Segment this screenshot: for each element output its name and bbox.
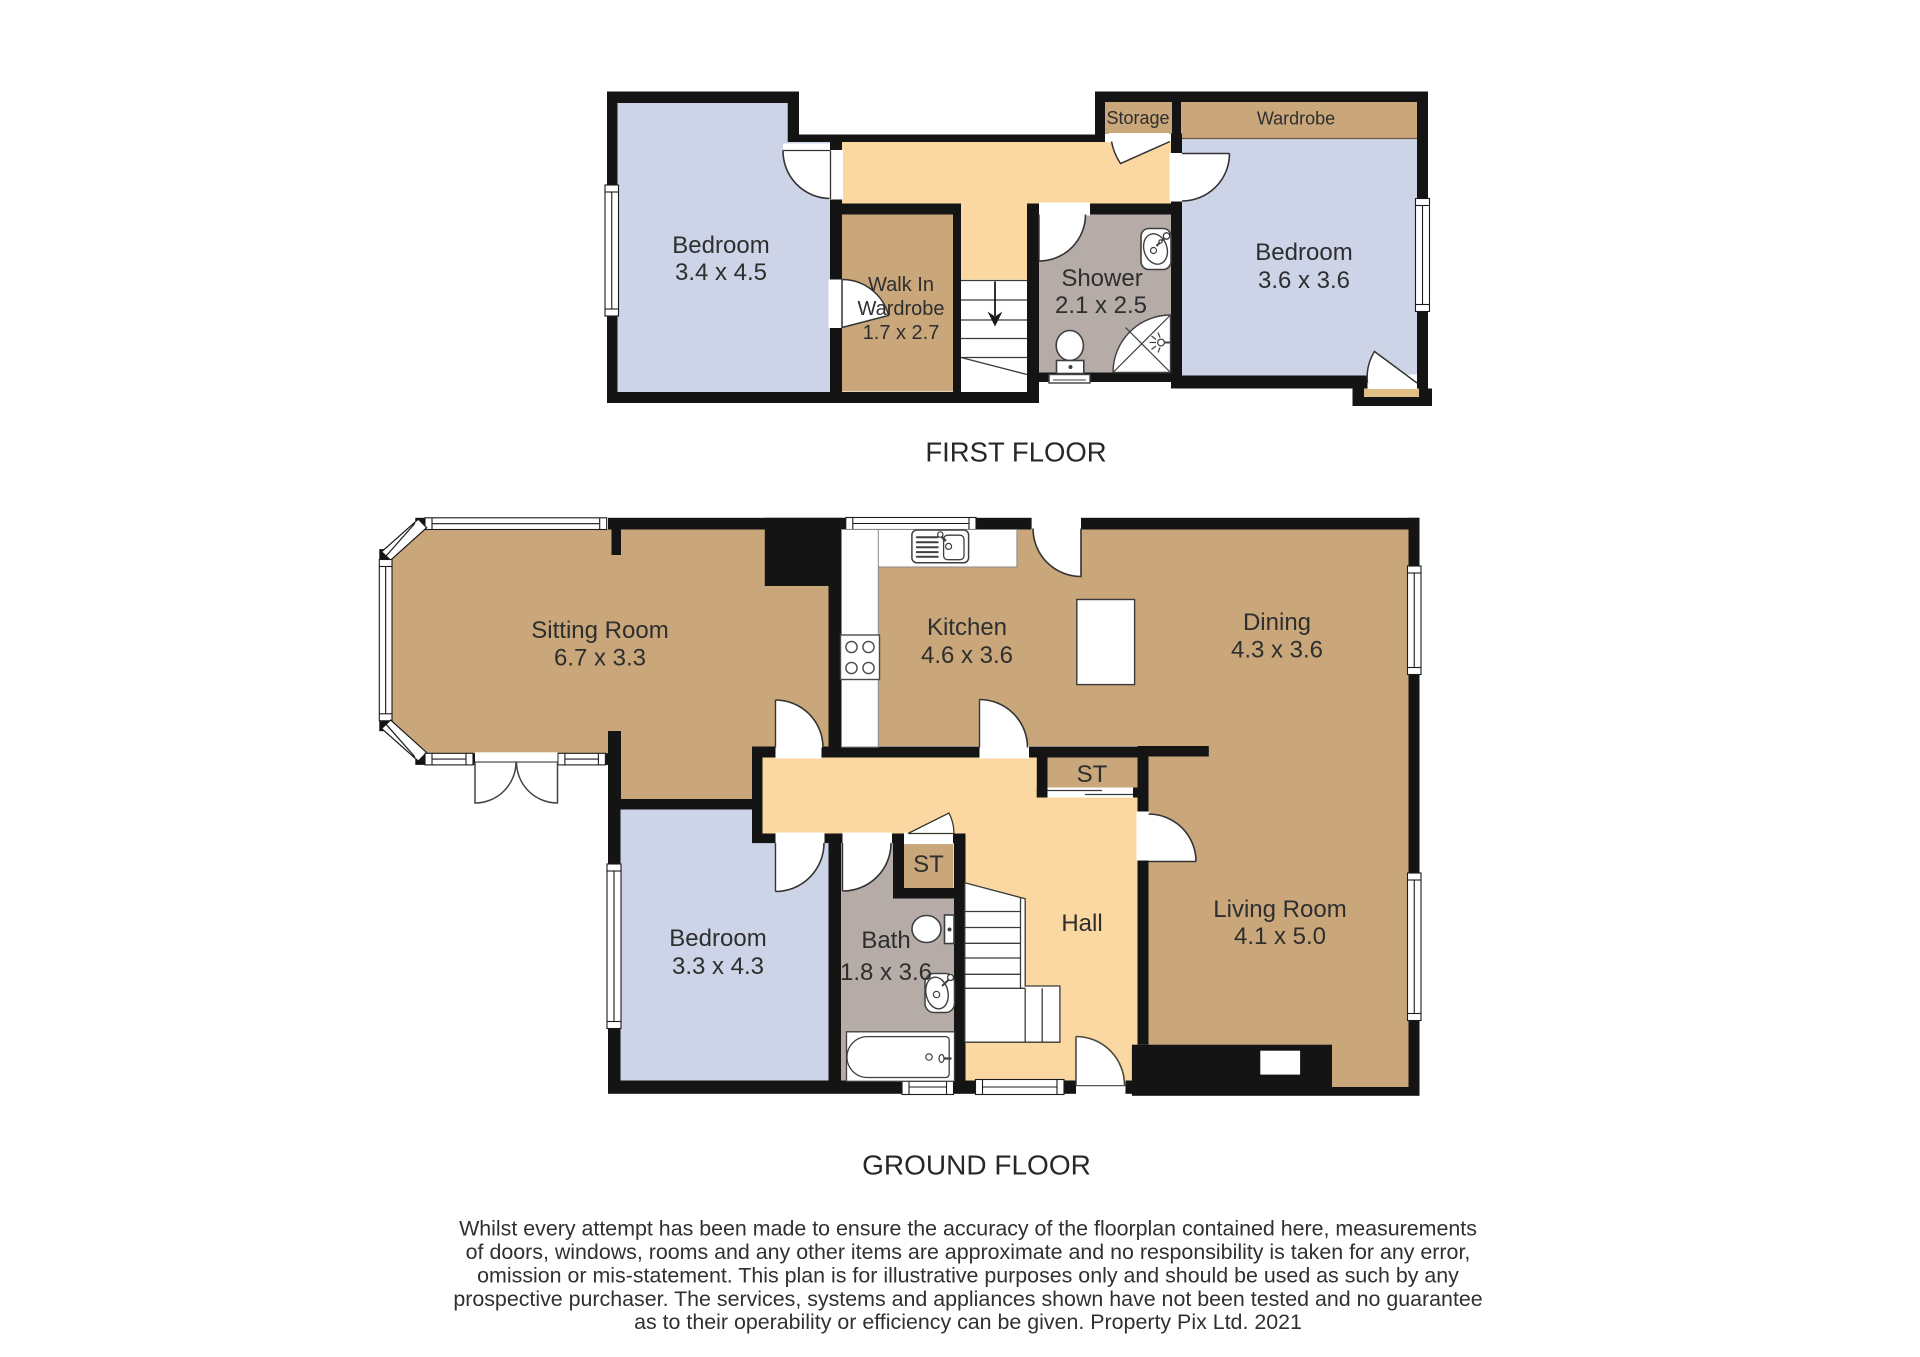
svg-text:Kitchen: Kitchen xyxy=(927,614,1007,641)
svg-text:1.8 x 3.6: 1.8 x 3.6 xyxy=(840,959,932,986)
svg-text:Living Room: Living Room xyxy=(1213,896,1346,923)
svg-text:6.7 x 3.3: 6.7 x 3.3 xyxy=(554,645,646,672)
svg-text:ST: ST xyxy=(1077,761,1108,788)
svg-text:prospective purchaser. The ser: prospective purchaser. The services, sys… xyxy=(453,1287,1482,1311)
svg-text:4.6 x 3.6: 4.6 x 3.6 xyxy=(921,642,1013,669)
svg-text:3.3 x 4.3: 3.3 x 4.3 xyxy=(672,953,764,980)
svg-text:Bedroom: Bedroom xyxy=(672,232,769,259)
svg-text:Bedroom: Bedroom xyxy=(1255,239,1352,266)
svg-text:1.7 x 2.7: 1.7 x 2.7 xyxy=(863,322,940,344)
svg-text:3.4 x 4.5: 3.4 x 4.5 xyxy=(675,259,767,286)
svg-text:omission or mis-statement. Thi: omission or mis-statement. This plan is … xyxy=(477,1264,1459,1288)
svg-text:Wardrobe: Wardrobe xyxy=(1257,109,1335,129)
svg-text:2.1 x 2.5: 2.1 x 2.5 xyxy=(1055,292,1147,319)
svg-text:Dining: Dining xyxy=(1243,609,1311,636)
svg-text:4.3 x 3.6: 4.3 x 3.6 xyxy=(1231,637,1323,664)
svg-text:Shower: Shower xyxy=(1061,265,1142,292)
svg-text:ST: ST xyxy=(913,851,944,878)
svg-text:3.6 x 3.6: 3.6 x 3.6 xyxy=(1258,267,1350,294)
svg-text:Sitting Room: Sitting Room xyxy=(531,617,668,644)
svg-text:of doors, windows, rooms and a: of doors, windows, rooms and any other i… xyxy=(466,1240,1471,1264)
svg-text:4.1 x 5.0: 4.1 x 5.0 xyxy=(1234,923,1326,950)
svg-text:GROUND FLOOR: GROUND FLOOR xyxy=(862,1150,1091,1181)
svg-text:Storage: Storage xyxy=(1106,108,1169,128)
svg-text:Hall: Hall xyxy=(1061,910,1102,937)
svg-text:Bedroom: Bedroom xyxy=(669,925,766,952)
svg-text:Whilst every attempt has been: Whilst every attempt has been made to en… xyxy=(459,1217,1477,1241)
svg-text:as to their operability or eff: as to their operability or efficiency ca… xyxy=(634,1310,1302,1334)
svg-text:Walk In: Walk In xyxy=(868,274,934,296)
svg-text:Wardrobe: Wardrobe xyxy=(857,298,944,320)
svg-text:Bath: Bath xyxy=(861,927,910,954)
svg-text:FIRST FLOOR: FIRST FLOOR xyxy=(925,437,1106,468)
